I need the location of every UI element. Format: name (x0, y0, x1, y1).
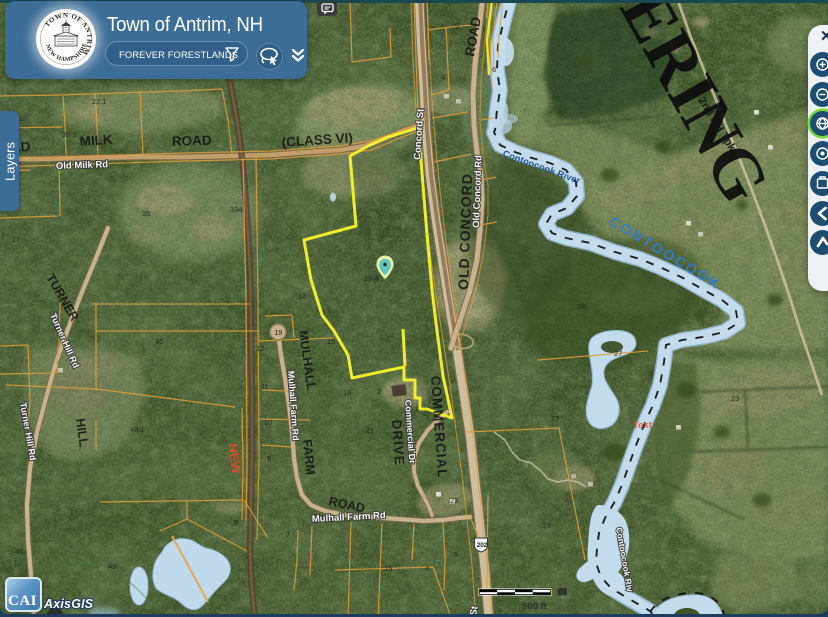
svg-text:6: 6 (492, 65, 496, 74)
svg-text:15: 15 (384, 564, 392, 573)
svg-text:23: 23 (450, 496, 458, 505)
svg-text:3: 3 (454, 550, 458, 559)
svg-text:23: 23 (731, 394, 739, 403)
svg-text:26: 26 (687, 64, 695, 73)
svg-text:10: 10 (264, 418, 272, 427)
svg-text:7: 7 (78, 444, 82, 453)
svg-text:7: 7 (286, 530, 290, 539)
svg-text:27: 27 (551, 414, 559, 423)
svg-text:Text: Text (633, 420, 653, 431)
svg-text:35: 35 (142, 209, 150, 218)
svg-text:16: 16 (343, 388, 351, 397)
svg-text:46.1: 46.1 (130, 425, 145, 434)
svg-text:8: 8 (234, 518, 238, 527)
svg-text:15: 15 (327, 337, 335, 346)
svg-text:202: 202 (477, 542, 488, 549)
svg-text:12: 12 (256, 344, 264, 353)
svg-text:45: 45 (155, 337, 163, 346)
svg-text:334: 334 (230, 205, 243, 214)
svg-text:22.1: 22.1 (92, 97, 107, 106)
svg-text:27: 27 (614, 349, 622, 358)
svg-text:500 ft: 500 ft (522, 601, 548, 612)
svg-text:40: 40 (15, 547, 23, 556)
svg-text:25-4: 25-4 (364, 274, 379, 283)
svg-text:33-2: 33-2 (62, 130, 77, 139)
svg-text:4: 4 (425, 564, 429, 573)
svg-text:17: 17 (12, 235, 20, 244)
svg-text:28: 28 (543, 521, 551, 530)
svg-text:2: 2 (377, 387, 381, 396)
svg-text:11: 11 (261, 382, 269, 391)
svg-text:ROAD: ROAD (172, 133, 212, 149)
svg-text:AxisGIS: AxisGIS (43, 597, 94, 611)
svg-text:26: 26 (578, 302, 586, 311)
svg-text:9: 9 (267, 454, 271, 463)
svg-text:Old Milk Rd: Old Milk Rd (56, 159, 109, 172)
svg-text:21: 21 (366, 426, 374, 435)
svg-text:19: 19 (275, 330, 283, 337)
svg-text:14: 14 (298, 292, 306, 301)
svg-text:49: 49 (108, 562, 116, 571)
svg-text:4: 4 (441, 73, 445, 82)
svg-text:MILK: MILK (79, 132, 113, 149)
svg-text:5: 5 (455, 21, 459, 30)
